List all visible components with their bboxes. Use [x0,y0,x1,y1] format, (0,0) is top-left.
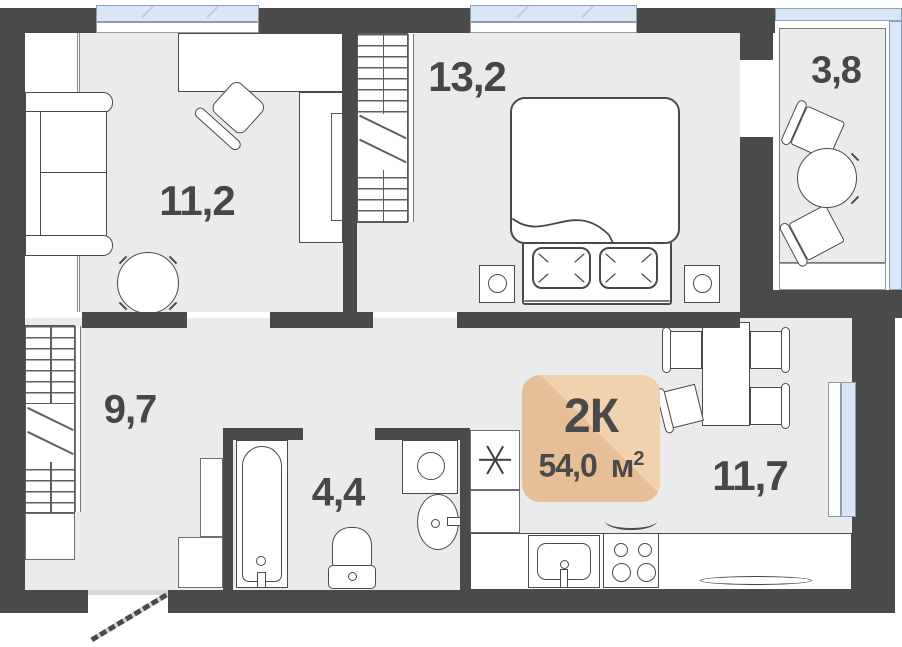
fridge [470,430,520,490]
area-value: 54,0 [539,448,597,484]
sofa-seat-2 [40,172,107,237]
bed-blanket [511,98,679,243]
balcony-frame [777,21,889,28]
shoe-cabinet-lower [178,537,223,588]
window-living-glass [96,5,259,22]
chair-back [781,327,790,373]
balcony-table [797,148,857,208]
bathroom-wall [223,428,303,440]
nightstand-right-lamp [693,274,712,293]
dining-chair [750,383,790,429]
bathroom-area-label: 4,4 [312,471,365,516]
toilet-button [348,572,357,581]
desk [178,33,343,92]
wall [740,137,773,298]
bathtub-drain [256,556,266,566]
wall [635,8,775,33]
balcony-glazing-top [775,8,902,21]
floor-plan: 11,2 13,2 3,8 9,7 4,4 11,7 2К 54,0 м2 [0,0,902,647]
window-bedroom-sill [470,22,637,33]
balcony-glazing-right [889,21,902,290]
wardrobe-bedroom [357,33,408,223]
fridge-icon [471,431,519,489]
chair-seat [750,387,782,425]
hallway-area-label: 9,7 [104,388,157,433]
chair-seat [670,331,702,369]
stove-burner [637,563,656,582]
counter-shelf [700,576,812,585]
wall [0,590,88,613]
window-kitchen-sill [828,382,841,517]
balcony-sill [779,263,886,290]
dining-table [702,322,750,426]
shoe-cabinet-upper [200,458,223,537]
wall [457,312,740,328]
window-living-sill [96,22,259,33]
wall [852,318,895,590]
apartment-type-label: 2К [564,393,618,441]
stove-burner [612,563,631,582]
apartment-badge: 2К 54,0 м2 [522,375,660,502]
sofa-armrest-bottom [25,235,113,256]
wall [82,312,187,328]
living-room-area-label: 11,2 [159,177,234,225]
nightstand-left-lamp [488,274,507,293]
wardrobe-hallway [25,325,75,513]
wardrobe-edge [75,326,81,512]
window-bedroom-glass [470,5,637,22]
wall [270,312,373,328]
hallway-cabinet [25,513,75,560]
area-unit: м [611,448,634,484]
wardrobe-living-door [331,113,343,221]
sofa-seat-1 [40,111,107,174]
wall [740,290,902,318]
kitchen-sink-faucet [560,569,568,588]
wall [343,33,357,312]
dining-chair [750,327,790,373]
bed-pillow-left [533,248,590,288]
area-sup: 2 [633,448,643,470]
stove-burner [614,543,628,557]
bathroom-wall [223,440,233,590]
wall [168,590,895,613]
washing-machine-door [417,452,445,480]
bathtub-faucet [257,572,266,588]
apartment-area-label: 54,0 м2 [539,441,644,484]
bathroom-sink-drain [431,519,440,528]
toilet-bowl [332,527,372,569]
wardrobe-edge [408,34,414,222]
kitchen-sink-drain [560,560,569,569]
wall [258,8,472,33]
stove-burner [638,543,652,557]
sofa-armrest-top [25,92,113,113]
round-table [117,252,179,314]
kitchen-area-label: 11,7 [712,452,787,500]
kitchen-cabinet [470,490,520,533]
balcony-area-label: 3,8 [811,50,861,93]
dining-chair [662,327,702,373]
window-kitchen-glass [841,382,856,517]
bathroom-wall [375,428,470,440]
chair-seat [750,331,782,369]
bathroom-wall [460,428,470,590]
chair-back [781,383,790,429]
entrance-threshold [88,590,168,595]
bed-pillow-right [600,248,657,288]
wall [0,8,25,613]
balcony-door-opening [740,60,773,137]
wall [740,33,773,60]
bedroom-area-label: 13,2 [428,53,506,101]
